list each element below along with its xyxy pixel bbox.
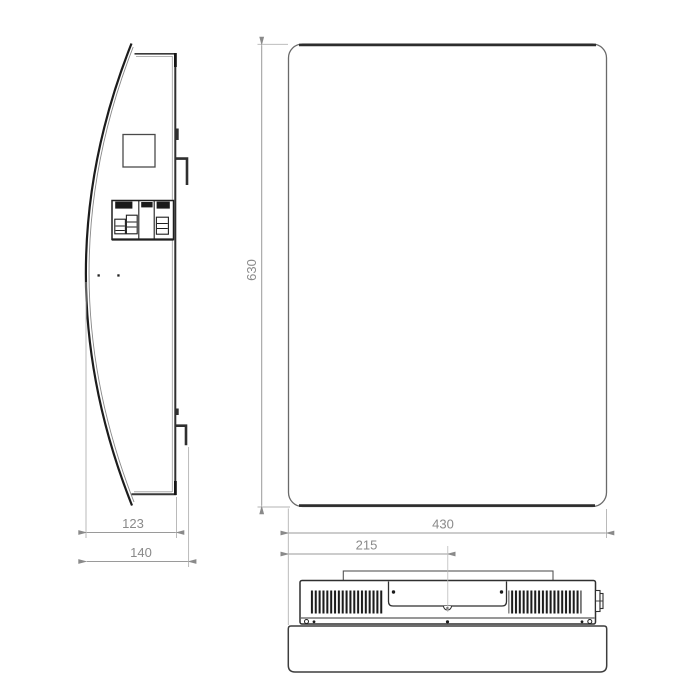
technical-drawing-page: 630 430 215 123 140 (0, 0, 700, 700)
breaker-block (112, 201, 174, 240)
dimension-label-140: 140 (130, 545, 152, 560)
body-screw-left-inner (313, 620, 316, 623)
side-view (86, 44, 187, 506)
body-screw-center (446, 620, 449, 623)
breaker-toggle-2 (141, 202, 152, 207)
bottom-front-panel (288, 626, 606, 672)
body-screw-right-inner (581, 620, 584, 623)
cable-connector (596, 591, 604, 612)
dimension-630: 630 (244, 44, 290, 507)
dimension-label-430: 430 (432, 517, 454, 532)
dimension-label-630: 630 (244, 259, 259, 281)
indicator-dot-2 (117, 274, 119, 276)
display-window (123, 135, 155, 168)
body-screw-left-outer (305, 620, 309, 624)
side-curved-inner-line (89, 47, 134, 502)
dimension-label-123: 123 (122, 516, 144, 531)
indicator-dot-1 (98, 274, 100, 276)
front-panel-outline (289, 44, 607, 507)
plate-screw-right (500, 590, 503, 593)
wall-bracket-upper (175, 129, 187, 186)
vent-grille-right (509, 591, 582, 614)
wall-bracket-lower (175, 409, 186, 446)
breaker-toggle-3 (157, 202, 170, 209)
vent-grille-left (310, 591, 383, 614)
dimension-123: 123 (86, 282, 177, 538)
body-screw-right-outer (588, 620, 592, 624)
technical-drawing: 630 430 215 123 140 (0, 0, 700, 700)
breaker-toggle-1 (115, 202, 132, 209)
plate-screw-left (392, 590, 395, 593)
dimension-label-215: 215 (356, 538, 378, 553)
dimension-140: 140 (87, 447, 189, 567)
side-curved-front-panel (86, 44, 132, 506)
front-view (289, 44, 607, 507)
